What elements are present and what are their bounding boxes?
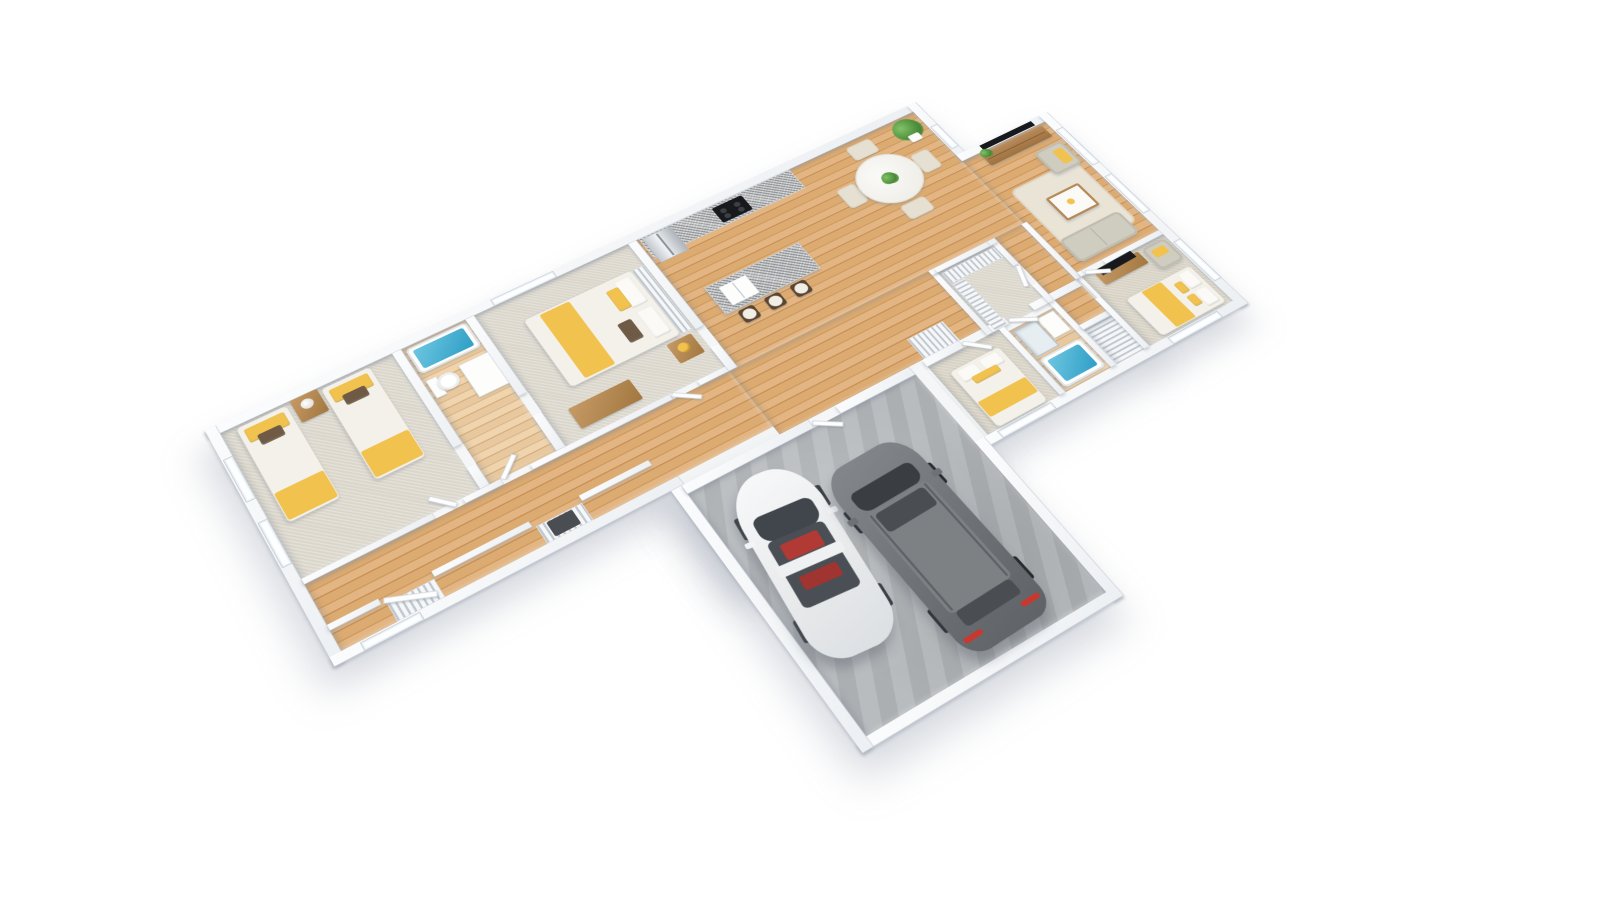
armchair-pillow [1052,147,1074,164]
taillight [1020,592,1041,607]
fridge-handle [656,233,675,255]
island-sink [718,275,760,306]
sofa-cushion-line [1090,228,1108,245]
sink-divider [732,283,746,299]
house-plan [205,65,1399,899]
taillight [962,628,984,644]
table-bowl [1065,197,1076,205]
burner [723,212,732,219]
burner [737,206,746,213]
pillow-brown [617,318,645,343]
armchair-pillow [1150,245,1170,258]
floorplan-scene [0,0,1600,899]
